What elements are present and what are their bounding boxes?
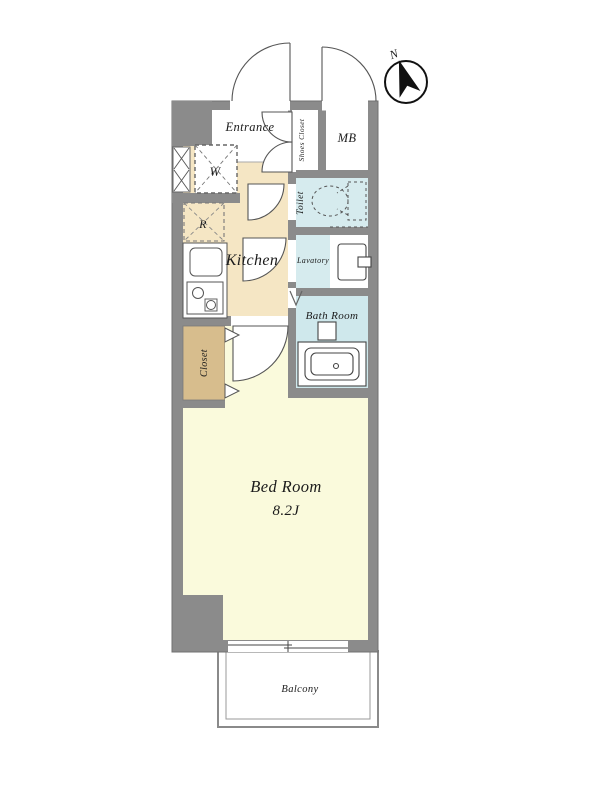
left-wall-window: [173, 147, 190, 192]
room-toilet-floor: [296, 178, 368, 227]
label-refrigerator: R: [198, 217, 207, 231]
label-kitchen: Kitchen: [225, 252, 279, 269]
compass-north-label: N: [387, 46, 401, 63]
label-bedroom-size: 8.2J: [272, 503, 300, 519]
door-gap-kitchen-bedroom: [231, 316, 288, 326]
wall-block-topleft: [172, 101, 212, 146]
compass: N: [385, 46, 427, 103]
label-toilet: Toilet: [296, 191, 306, 215]
bedroom-sliding-window: [228, 641, 348, 652]
balcony: Balcony: [218, 651, 378, 727]
label-entrance: Entrance: [224, 120, 274, 134]
mb-door-arc: [322, 47, 376, 101]
stove-burner-2: [207, 301, 216, 310]
bath-faucet: [318, 322, 336, 340]
wall-below-washer: [172, 193, 240, 203]
kitchen-sink: [190, 248, 222, 276]
label-shoes-closet: Shoes Closet: [297, 118, 306, 161]
label-mb: MB: [337, 131, 357, 145]
label-bath: Bath Room: [306, 310, 359, 322]
label-bedroom: Bed Room: [250, 477, 321, 496]
front-door-arc: [232, 43, 290, 101]
kitchen-counter: [183, 243, 227, 318]
balcony-label: Balcony: [281, 684, 318, 695]
label-washer: W: [210, 165, 222, 179]
label-closet: Closet: [199, 349, 210, 377]
floorplan-page: Balcony: [0, 0, 600, 800]
floorplan-drawing: Balcony: [0, 0, 600, 800]
label-lavatory: Lavatory: [296, 256, 329, 265]
lavatory-basin: [338, 244, 371, 280]
